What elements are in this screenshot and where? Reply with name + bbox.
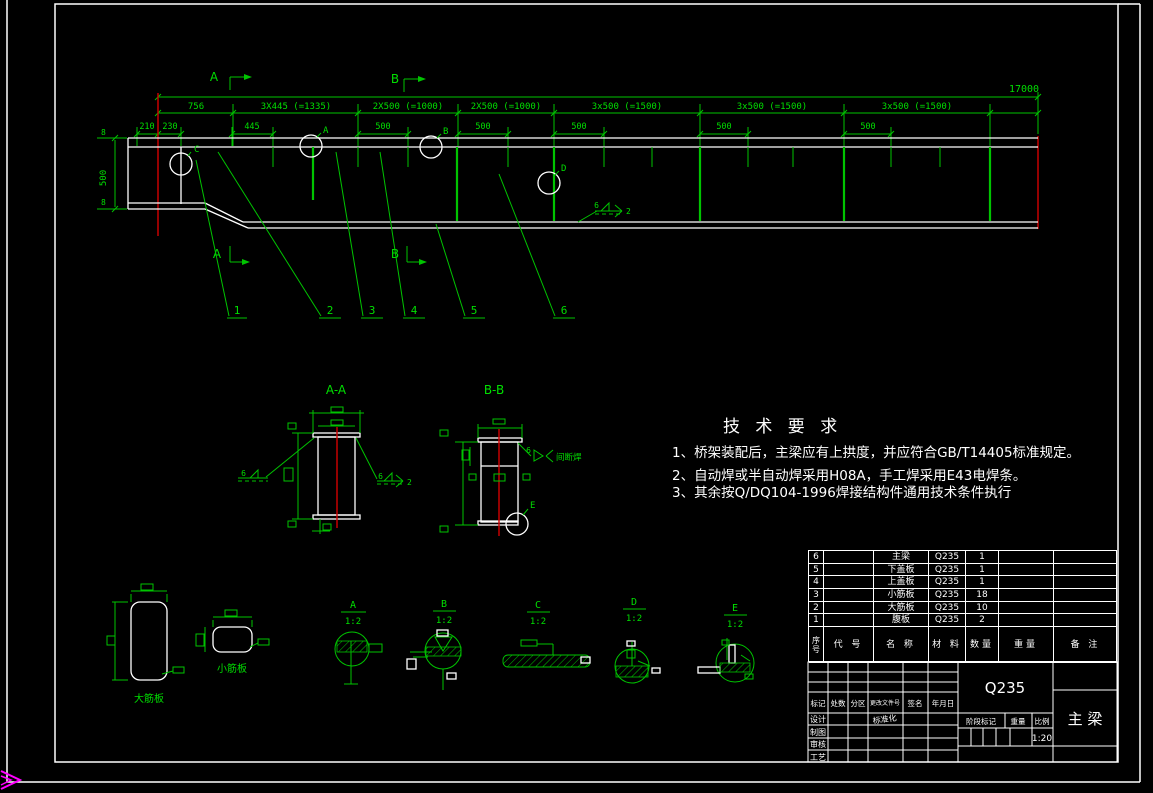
bom-cell-weight	[999, 551, 1054, 564]
bom-cell-material: Q235	[929, 564, 966, 577]
dim-sub-500a: 500	[375, 122, 390, 132]
taper-upper	[205, 203, 243, 222]
section-aa: A-A 6 6	[238, 383, 412, 534]
bom-cell-material: Q235	[929, 602, 966, 615]
svg-text:A: A	[350, 600, 356, 611]
bom-cell-material: Q235	[929, 614, 966, 627]
bom-cell-qty: 18	[966, 589, 999, 602]
bom-table: 6 主梁 Q235 1 5 下盖板 Q235 1 4 上盖板 Q235 1 3 …	[808, 550, 1117, 662]
dim-sub-500b: 500	[475, 122, 490, 132]
bom-header-weight: 重量	[999, 627, 1054, 663]
tb-material: Q235	[985, 679, 1025, 697]
dim-segments: 756 3X445 (=1335) 2X500 (=1000) 2X500 (=…	[155, 102, 1041, 146]
detail-label-c: C	[194, 145, 199, 155]
svg-text:6: 6	[526, 446, 531, 455]
tb-role-check: 审核	[810, 739, 826, 749]
svg-text:1:2: 1:2	[530, 617, 546, 627]
dim-seg-1: 3X445 (=1335)	[261, 102, 331, 112]
dim-sub-445: 445	[244, 122, 259, 132]
tb-role-design: 设计	[810, 714, 826, 724]
bom-cell-qty: 1	[966, 564, 999, 577]
detail-circle-d	[538, 172, 560, 194]
dim-total-value: 17000	[1009, 84, 1039, 95]
svg-text:D: D	[631, 597, 637, 608]
small-rib-plate: 小筋板	[196, 610, 269, 675]
detail-view-b: B 1:2	[407, 599, 461, 690]
svg-text:1:2: 1:2	[345, 617, 361, 627]
bom-cell-remark	[1054, 589, 1117, 602]
tb-rev-zone: 分区	[851, 699, 866, 708]
bom-header-qty: 数量	[966, 627, 999, 663]
bom-cell-remark	[1054, 614, 1117, 627]
bom-cell-code	[824, 551, 874, 564]
tb-weight-label: 重量	[1011, 717, 1027, 726]
bom-cell-qty: 2	[966, 614, 999, 627]
svg-text:1:2: 1:2	[626, 614, 642, 624]
detail-label-a: A	[323, 126, 329, 136]
bom-cell-weight	[999, 564, 1054, 577]
tb-role-process: 工艺	[810, 753, 826, 762]
bom-cell-material: Q235	[929, 551, 966, 564]
bom-header-name: 名 称	[874, 627, 929, 663]
tech-req-item-1: 1、桥架装配后，主梁应有上拱度，并应符合GB/T14405标准规定。	[672, 441, 1080, 461]
bom-cell-name: 上盖板	[874, 576, 929, 589]
dim-left-height-value: 500	[99, 170, 109, 186]
part-leaders: 1 2 3 4 5 6	[196, 152, 575, 318]
bom-header-code: 代 号	[824, 627, 874, 663]
tb-rev-count: 处数	[831, 698, 846, 708]
weld-size: 6	[594, 201, 599, 210]
bom-cell-material: Q235	[929, 576, 966, 589]
bom-cell-weight	[999, 576, 1054, 589]
bom-header-remark: 备 注	[1054, 627, 1117, 663]
dim-seg-0: 756	[188, 102, 204, 112]
part-number-1: 1	[234, 304, 241, 317]
tb-standardization: 标准化	[872, 712, 897, 725]
bom-cell-remark	[1054, 576, 1117, 589]
bom-cell-qty: 1	[966, 576, 999, 589]
svg-text:1:2: 1:2	[436, 616, 452, 626]
section-mark-a-top: A	[210, 70, 252, 90]
svg-text:1:2: 1:2	[727, 620, 743, 630]
dim-left-height: 500 8 8	[97, 128, 127, 212]
weld-symbol-aa-left: 6	[238, 438, 314, 481]
bom-cell-qty: 10	[966, 602, 999, 615]
part-number-3: 3	[369, 304, 376, 317]
dim-seg-3: 2X500 (=1000)	[471, 102, 541, 112]
part-number-6: 6	[561, 304, 568, 317]
bom-cell-code	[824, 602, 874, 615]
part-number-2: 2	[327, 304, 334, 317]
bom-cell-code	[824, 589, 874, 602]
bom-cell-num: 3	[809, 589, 824, 602]
dim-sub-500e: 500	[860, 122, 875, 132]
tb-scale-label: 比例	[1035, 716, 1050, 726]
bom-cell-num: 6	[809, 551, 824, 564]
svg-text:B: B	[441, 599, 447, 610]
bom-header-seq: 序号	[809, 627, 824, 663]
tech-req-item-3: 3、其余按Q/DQ104-1996焊接结构件通用技术条件执行	[672, 481, 1011, 501]
tb-rev-docno: 更改文件号	[870, 699, 900, 707]
detail-circle-e	[506, 513, 528, 535]
bom-cell-name: 腹板	[874, 614, 929, 627]
weld-symbol-elevation: 6 2	[578, 201, 631, 222]
section-bb-title: B-B	[484, 383, 504, 397]
part-number-4: 4	[411, 304, 418, 317]
dim-seg-5: 3x500 (=1500)	[737, 102, 807, 112]
bom-cell-num: 1	[809, 614, 824, 627]
detail-label-e: E	[530, 501, 535, 511]
taper-lower	[205, 209, 248, 228]
large-rib-plate: 大筋板	[107, 584, 184, 705]
bom-cell-weight	[999, 614, 1054, 627]
section-aa-title: A-A	[326, 383, 347, 397]
weld-symbol-aa-right: 6 2	[356, 438, 412, 487]
tb-stage-label: 阶段标记	[966, 716, 996, 726]
bom-cell-code	[824, 614, 874, 627]
bom-cell-remark	[1054, 551, 1117, 564]
bom-cell-weight	[999, 602, 1054, 615]
dim-seg-4: 3x500 (=1500)	[592, 102, 662, 112]
thickness-mark-bottom: 8	[101, 198, 106, 207]
bom-cell-name: 下盖板	[874, 564, 929, 577]
detail-label-d: D	[561, 164, 566, 174]
dim-sub-500d: 500	[716, 122, 731, 132]
bom-cell-num: 2	[809, 602, 824, 615]
section-bb: B-B 6 间断焊 E	[440, 383, 582, 536]
thickness-mark-top: 8	[101, 128, 106, 137]
section-mark-b-top: B	[391, 72, 426, 92]
cad-drawing-canvas: 17000 756 3X445 (=1335) 2X500 (=1000) 2X…	[0, 0, 1153, 793]
tb-rev-mark: 标记	[811, 698, 826, 708]
datum-lines	[158, 93, 1038, 236]
drawing-svg: 17000 756 3X445 (=1335) 2X500 (=1000) 2X…	[0, 0, 1153, 793]
dim-sub-500c: 500	[571, 122, 586, 132]
bom-cell-code	[824, 564, 874, 577]
detail-view-c: C 1:2	[503, 600, 590, 667]
dim-sub-230: 230	[162, 122, 177, 132]
tb-drawing-title: 主 梁	[1068, 710, 1103, 728]
bom-cell-name: 主梁	[874, 551, 929, 564]
girder-outline	[128, 138, 1038, 228]
weld-tail: 2	[626, 207, 631, 216]
svg-text:6: 6	[378, 472, 383, 481]
dim-subs: 210 230 445 500 500 500 500 500	[134, 122, 894, 146]
small-rib-plate-label: 小筋板	[217, 662, 247, 675]
tb-scale-value: 1:20	[1032, 734, 1052, 744]
plot-mark-chevron	[1, 771, 20, 789]
detail-view-e: E 1:2	[698, 603, 754, 682]
svg-text:6: 6	[241, 469, 246, 478]
svg-text:A: A	[210, 70, 219, 84]
dim-sub-210: 210	[139, 122, 154, 132]
svg-text:E: E	[732, 603, 738, 614]
detail-view-d: D 1:2	[615, 597, 660, 683]
bom-cell-qty: 1	[966, 551, 999, 564]
detail-view-a: A 1:2	[335, 600, 382, 684]
bom-cell-remark	[1054, 602, 1117, 615]
svg-text:C: C	[535, 600, 541, 611]
bom-cell-name: 大筋板	[874, 602, 929, 615]
bom-cell-material: Q235	[929, 589, 966, 602]
tech-req-title: 技 术 要 求	[723, 412, 842, 437]
section-mark-a-bottom: A	[213, 246, 250, 265]
bom-cell-num: 4	[809, 576, 824, 589]
large-rib-plate-label: 大筋板	[134, 692, 164, 705]
svg-text:间断焊: 间断焊	[556, 452, 582, 463]
tb-rev-date: 年月日	[932, 698, 955, 708]
bom-header-material: 材 料	[929, 627, 966, 663]
bom-cell-num: 5	[809, 564, 824, 577]
tb-role-draft: 制图	[810, 727, 826, 737]
bom-cell-name: 小筋板	[874, 589, 929, 602]
svg-text:2: 2	[407, 478, 412, 487]
svg-text:B: B	[391, 72, 399, 86]
bom-cell-remark	[1054, 564, 1117, 577]
bom-cell-weight	[999, 589, 1054, 602]
technical-requirements: 技 术 要 求 1、桥架装配后，主梁应有上拱度，并应符合GB/T14405标准规…	[672, 412, 1142, 502]
dim-seg-6: 3x500 (=1500)	[882, 102, 952, 112]
dim-seg-2: 2X500 (=1000)	[373, 102, 443, 112]
part-number-5: 5	[471, 304, 478, 317]
weld-symbol-bb: 6 间断焊	[518, 443, 582, 463]
detail-label-b: B	[443, 127, 448, 137]
bom-cell-code	[824, 576, 874, 589]
tb-rev-sign: 签名	[908, 698, 923, 708]
